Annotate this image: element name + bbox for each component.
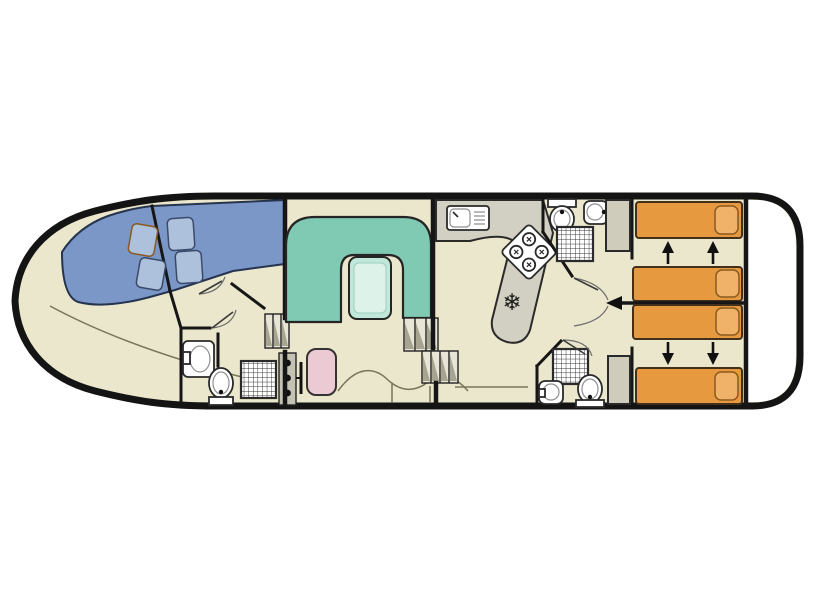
bow-bed-pillow (128, 223, 159, 257)
helm-console (279, 353, 296, 405)
stern-deck (746, 200, 796, 402)
helm-seat (307, 349, 336, 395)
toilet-icon (576, 375, 604, 407)
saloon-table (349, 257, 391, 319)
kitchen-sink-icon (447, 206, 489, 230)
washbasin-icon (584, 201, 608, 224)
wardrobe (608, 356, 630, 404)
fridge-icon: ❄ (502, 290, 521, 316)
bow-bed-pillow (175, 250, 203, 284)
wardrobe (606, 200, 630, 251)
steps-lower (422, 351, 458, 383)
shower-icon (241, 361, 276, 398)
shower-icon (557, 227, 593, 261)
bow-bed-pillow (167, 217, 195, 251)
washbasin-icon (539, 381, 563, 404)
bed-pillow (716, 270, 739, 297)
washbasin-icon (183, 341, 214, 377)
bed-pillow (715, 206, 738, 234)
boat-floor-plan: ❄ (0, 0, 816, 612)
bed-pillow (715, 372, 738, 400)
bed-pillow (716, 308, 739, 335)
bow-bed-pillow (136, 257, 167, 291)
toilet-icon (209, 368, 233, 405)
